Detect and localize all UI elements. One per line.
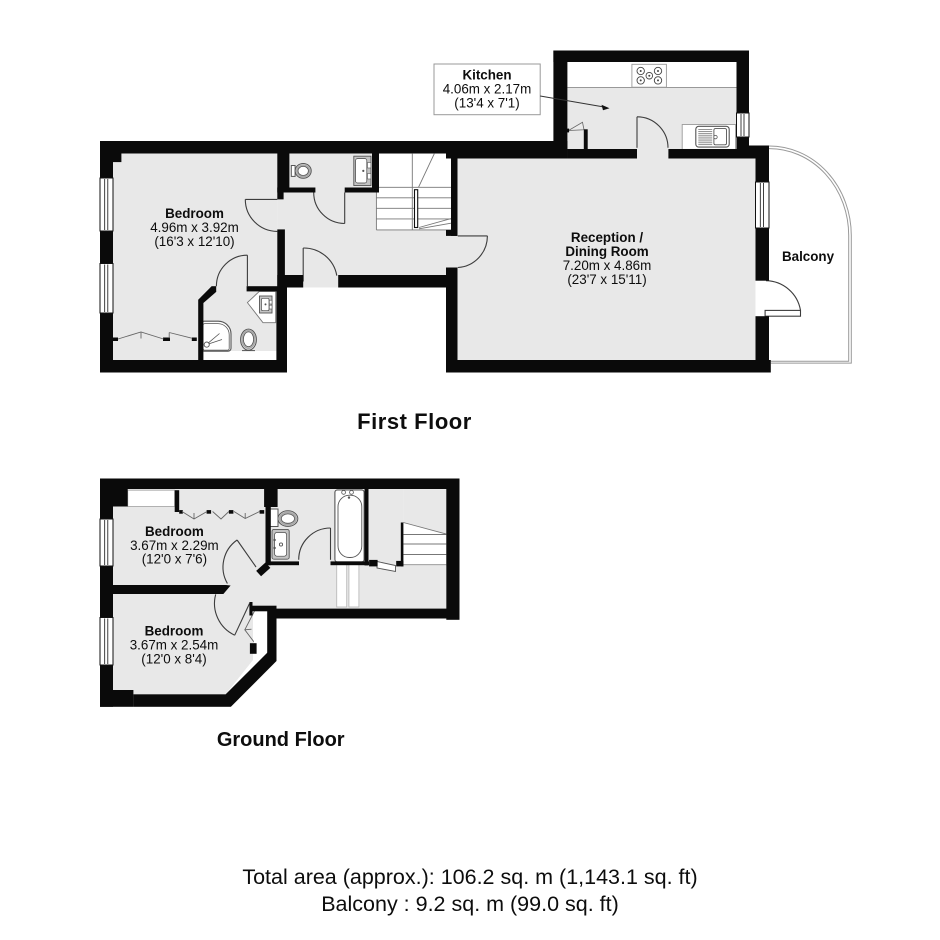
svg-text:Total area (approx.): 106.2 sq: Total area (approx.): 106.2 sq. m (1,143… <box>242 865 697 889</box>
svg-text:Bedroom: Bedroom <box>165 206 224 221</box>
svg-text:Balcony : 9.2 sq. m (99.0 sq.: Balcony : 9.2 sq. m (99.0 sq. ft) <box>321 892 619 916</box>
svg-text:(13'4 x 7'1): (13'4 x 7'1) <box>454 96 519 111</box>
svg-text:Balcony: Balcony <box>782 249 835 264</box>
svg-text:First Floor: First Floor <box>357 409 472 434</box>
svg-text:Reception /: Reception / <box>571 230 643 245</box>
svg-text:(12'0 x 8'4): (12'0 x 8'4) <box>141 652 206 667</box>
svg-text:Bedroom: Bedroom <box>145 624 204 639</box>
svg-text:4.96m x 3.92m: 4.96m x 3.92m <box>150 220 239 235</box>
svg-text:(12'0 x 7'6): (12'0 x 7'6) <box>142 552 207 567</box>
svg-text:(23'7 x 15'11): (23'7 x 15'11) <box>567 272 646 287</box>
svg-text:(16'3 x 12'10): (16'3 x 12'10) <box>154 234 234 249</box>
svg-text:4.06m x 2.17m: 4.06m x 2.17m <box>443 82 532 97</box>
svg-text:Bedroom: Bedroom <box>145 524 204 539</box>
svg-text:Dining Room: Dining Room <box>565 244 648 259</box>
svg-text:7.20m x 4.86m: 7.20m x 4.86m <box>563 258 652 273</box>
svg-text:Kitchen: Kitchen <box>462 67 511 82</box>
svg-text:3.67m x 2.54m: 3.67m x 2.54m <box>130 638 219 653</box>
svg-text:Ground Floor: Ground Floor <box>217 729 345 751</box>
